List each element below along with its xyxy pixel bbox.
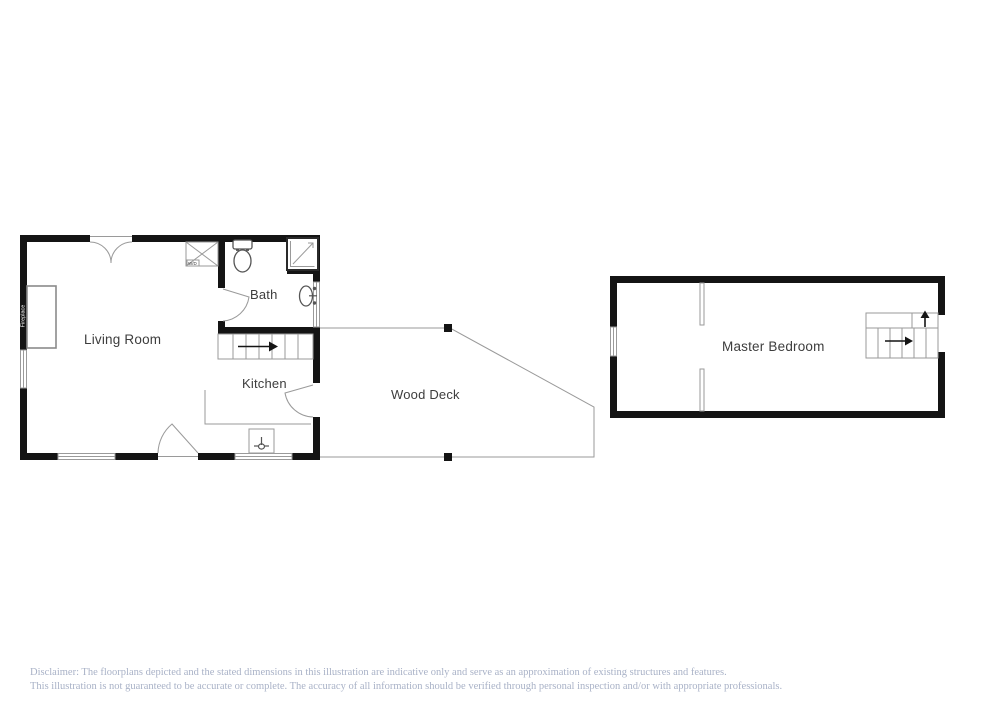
closet-wd-label: W/D	[188, 261, 197, 266]
stairs-down-icon	[218, 334, 313, 359]
double-door-arc-right	[111, 242, 132, 263]
bath-label: Bath	[250, 287, 278, 302]
mb-wall-right-lower	[938, 352, 945, 411]
wall-bottom-2	[115, 453, 158, 460]
kitchen-label: Kitchen	[242, 376, 287, 391]
window	[58, 454, 115, 460]
wall-right-middle	[313, 327, 320, 383]
bath-left-wall-stub	[218, 321, 225, 327]
mb-partition-walls	[700, 283, 704, 411]
wall-bottom-4	[292, 453, 320, 460]
wall-left-lower	[20, 388, 27, 453]
toilet-icon	[233, 240, 252, 272]
fireplace-icon	[27, 286, 56, 348]
left-building	[20, 235, 320, 460]
master-bedroom-label: Master Bedroom	[722, 339, 825, 354]
mb-wall-top	[610, 276, 945, 283]
bath-sink-icon	[300, 286, 318, 306]
living-room-label: Living Room	[84, 332, 161, 347]
kitchen-sink-icon	[249, 429, 274, 453]
deck-post	[444, 453, 452, 461]
kitchen-door-arc	[285, 385, 313, 417]
wall-left-upper	[20, 242, 27, 350]
deck-post	[444, 324, 452, 332]
living-room-door-arc	[158, 424, 198, 453]
kitchen-counter	[205, 390, 311, 424]
stairs-up-icon	[866, 311, 938, 359]
disclaimer-line-2: This illustration is not guaranteed to b…	[30, 681, 782, 692]
fireplace-label: Fireplace	[21, 299, 27, 334]
mb-wall-left-upper	[610, 283, 617, 327]
double-door-arc-left	[90, 242, 111, 263]
bath-bottom-wall	[218, 327, 320, 334]
window	[235, 454, 292, 460]
mb-wall-right-upper	[938, 283, 945, 315]
wall-right-lower	[313, 417, 320, 453]
mb-wall-bottom	[610, 411, 945, 418]
windows	[21, 282, 320, 460]
bath-left-wall	[218, 242, 225, 288]
disclaimer-line-1: Disclaimer: The floorplans depicted and …	[30, 667, 727, 678]
mb-wall-left-lower	[610, 356, 617, 411]
partition-stub-bottom	[700, 369, 704, 411]
wall-top-left	[20, 235, 90, 242]
wall-bottom-3	[198, 453, 235, 460]
window	[21, 350, 27, 388]
window	[611, 327, 617, 356]
wall-bottom-1	[20, 453, 58, 460]
floorplan-drawing	[0, 0, 1000, 707]
wood-deck-label: Wood Deck	[391, 387, 460, 402]
bath-door-arc	[223, 289, 249, 321]
shower-icon	[287, 238, 318, 270]
partition-stub-top	[700, 283, 704, 325]
